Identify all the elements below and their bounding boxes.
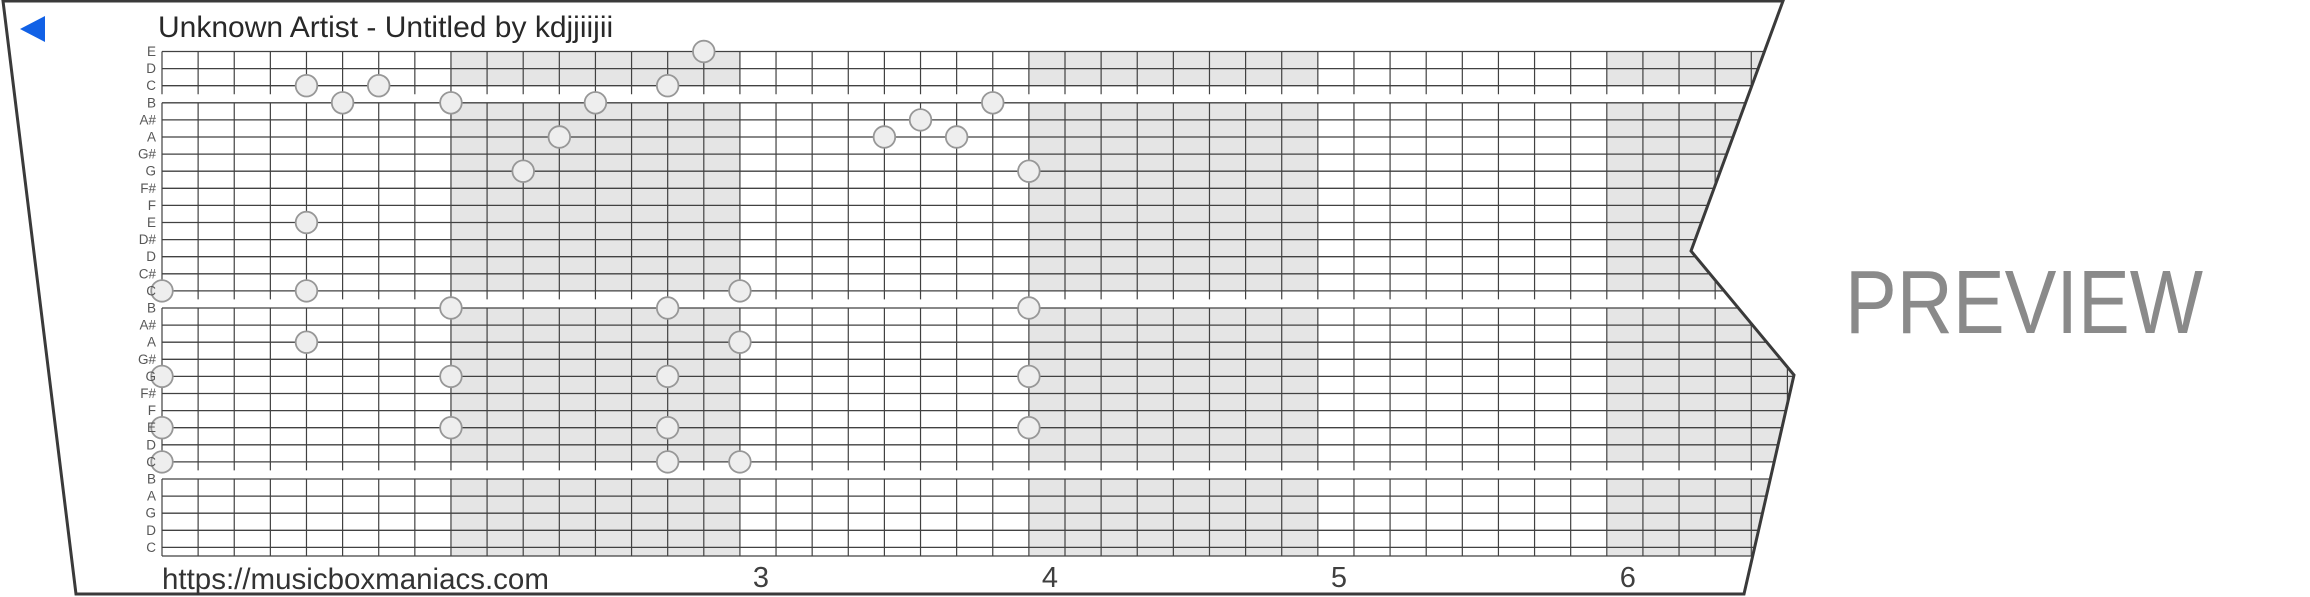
row-label: D — [146, 523, 156, 538]
note-hole — [1018, 160, 1040, 182]
preview-watermark: PREVIEW — [1845, 253, 2203, 353]
note-hole — [440, 417, 462, 439]
row-label: G — [145, 369, 156, 384]
row-label: D — [146, 249, 156, 264]
row-label: A — [147, 489, 156, 504]
row-label: C# — [139, 266, 157, 281]
row-label: B — [147, 301, 156, 316]
row-label: A — [147, 335, 156, 350]
row-label: E — [147, 215, 156, 230]
row-label: F — [148, 403, 156, 418]
note-hole — [657, 297, 679, 319]
note-hole — [296, 75, 318, 97]
row-label: D — [146, 61, 156, 76]
note-hole — [585, 92, 607, 114]
note-hole — [332, 92, 354, 114]
note-hole — [874, 126, 896, 148]
row-label: C — [146, 283, 156, 298]
note-hole — [368, 75, 390, 97]
note-hole — [910, 109, 932, 131]
row-label: F# — [140, 386, 156, 401]
note-hole — [657, 75, 679, 97]
row-label: F# — [140, 181, 156, 196]
measure-number: 4 — [1042, 562, 1058, 594]
row-label: C — [146, 540, 156, 555]
note-hole — [729, 451, 751, 473]
note-hole — [296, 280, 318, 302]
note-hole — [946, 126, 968, 148]
note-hole — [296, 331, 318, 353]
row-label: G — [145, 164, 156, 179]
note-hole — [982, 92, 1004, 114]
measure-number: 6 — [1620, 562, 1636, 594]
row-label: A# — [139, 318, 156, 333]
note-hole — [693, 41, 715, 63]
measure-number: 3 — [753, 562, 769, 594]
row-label: B — [147, 95, 156, 110]
note-hole — [1018, 417, 1040, 439]
row-label: E — [147, 420, 156, 435]
row-label: A — [147, 130, 156, 145]
note-hole — [440, 366, 462, 388]
strip-title: Unknown Artist - Untitled by kdjjiijii — [158, 11, 613, 44]
note-hole — [657, 366, 679, 388]
row-label: E — [147, 44, 156, 59]
note-hole — [1018, 297, 1040, 319]
row-label: C — [146, 454, 156, 469]
site-url: https://musicboxmaniacs.com — [162, 563, 549, 596]
row-label: A# — [139, 112, 156, 127]
paper-strip — [3, 1, 1794, 594]
measure-number: 5 — [1331, 562, 1347, 594]
note-hole — [657, 417, 679, 439]
note-hole — [549, 126, 571, 148]
row-label: G — [145, 506, 156, 521]
row-label: D# — [139, 232, 157, 247]
row-label: D — [146, 437, 156, 452]
row-label: C — [146, 78, 156, 93]
note-hole — [296, 212, 318, 234]
note-hole — [729, 331, 751, 353]
row-label: B — [147, 472, 156, 487]
note-hole — [512, 160, 534, 182]
note-hole — [729, 280, 751, 302]
music-strip-preview: EDCBA#AG#GF#FED#DC#CBA#AG#GF#FEDCBAGDC 3… — [0, 0, 2310, 597]
note-hole — [657, 451, 679, 473]
row-label: G# — [138, 147, 157, 162]
row-label: F — [148, 198, 156, 213]
row-label: G# — [138, 352, 157, 367]
note-hole — [440, 92, 462, 114]
note-hole — [440, 297, 462, 319]
note-hole — [1018, 366, 1040, 388]
